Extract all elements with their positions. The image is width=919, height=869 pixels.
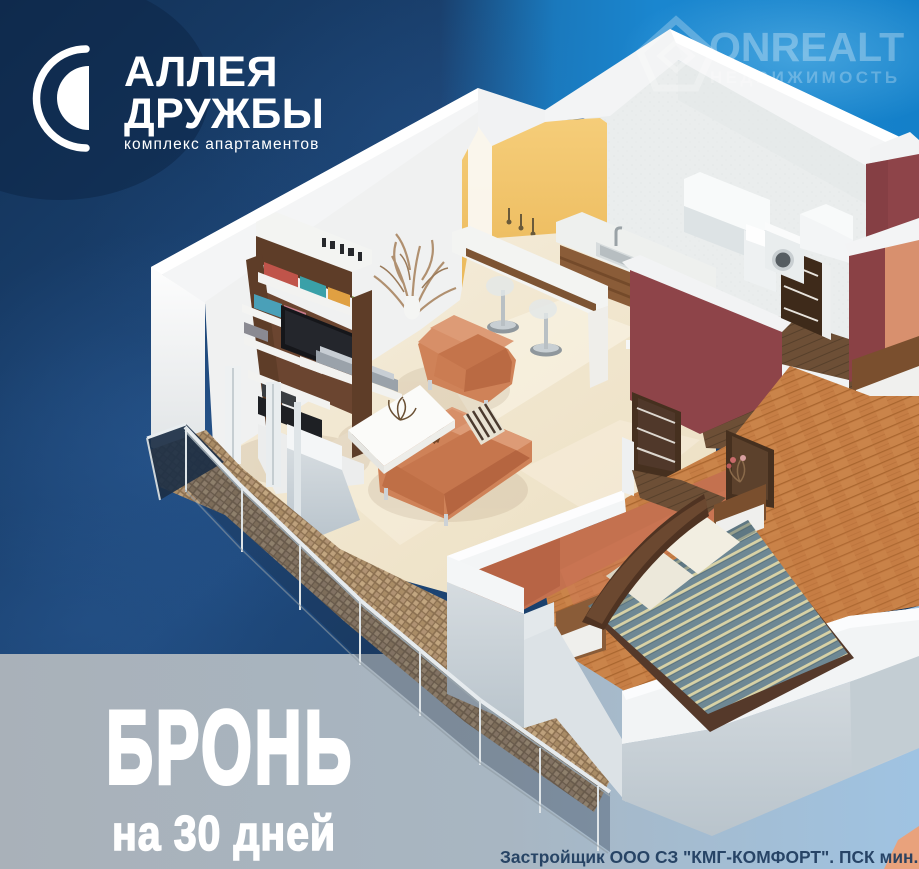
- svg-text:БРОНЬ: БРОНЬ: [106, 690, 354, 806]
- svg-text:АЛЛЕЯ: АЛЛЕЯ: [124, 48, 278, 96]
- svg-text:на 30 дней: на 30 дней: [112, 806, 336, 861]
- svg-text:ONREALT: ONREALT: [709, 24, 904, 70]
- svg-text:Застройщик ООО СЗ "КМГ-КОМФОРТ: Застройщик ООО СЗ "КМГ-КОМФОРТ". ПСК мин…: [500, 847, 918, 867]
- svg-text:НЕДВИЖИМОСТЬ: НЕДВИЖИМОСТЬ: [710, 68, 900, 87]
- svg-text:ДРУЖБЫ: ДРУЖБЫ: [124, 90, 324, 138]
- svg-text:комплекс апартаментов: комплекс апартаментов: [124, 136, 319, 153]
